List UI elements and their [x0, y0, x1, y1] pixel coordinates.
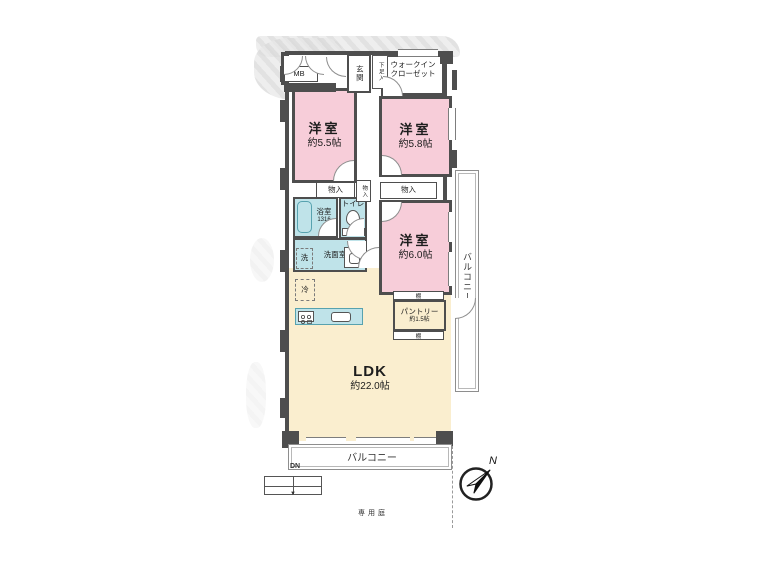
- wall-stub-left-2: [280, 168, 286, 190]
- stairs-dn-label: DN: [290, 463, 300, 470]
- closet-a: 物入: [316, 182, 355, 198]
- scan-blob-2: [246, 362, 266, 428]
- sink-icon: [331, 312, 351, 322]
- pantry-shelf-top-label: 棚: [416, 292, 422, 300]
- floorplan-canvas: 洋室 約5.5帖 洋室 約5.8帖 洋室 約6.0帖 ウォークイン クローゼット…: [0, 0, 764, 573]
- washer-space: 洗: [296, 248, 313, 269]
- wall-stub-left-3: [280, 250, 286, 272]
- bedroom3-label: 洋室: [399, 233, 431, 249]
- entrance-label: 玄関: [355, 65, 364, 82]
- bedroom1-label: 洋室: [308, 121, 340, 137]
- washer-label: 洗: [301, 254, 309, 263]
- bedroom3-size: 約6.0帖: [399, 250, 433, 262]
- shoe-cabinet-label: 下足入: [377, 62, 383, 82]
- pantry-shelf-bottom-label: 棚: [416, 332, 422, 340]
- pillar-top-right: [440, 51, 453, 64]
- wic-label-line2: クローゼット: [391, 70, 436, 79]
- wall-stub-right-2: [452, 150, 457, 168]
- balcony-bottom-label: バルコニー: [330, 449, 414, 464]
- garden-label: 専用庭: [338, 508, 408, 518]
- bathroom-label: 浴室: [317, 208, 332, 217]
- pantry-shelf-bottom: 棚: [393, 331, 444, 340]
- closet-b: 物入: [356, 180, 371, 202]
- scan-blob-1: [250, 238, 274, 282]
- balcony-right-label: バルコニー: [461, 252, 474, 302]
- closet-c-label: 物入: [401, 186, 416, 195]
- washroom-label: 洗面室: [324, 251, 347, 260]
- bedroom2-size: 約5.8帖: [399, 139, 433, 151]
- ldk-label: LDK: [353, 363, 387, 382]
- garden-boundary-line: [452, 446, 453, 528]
- window-top-bedroom2: [398, 49, 438, 57]
- ldk-label-block: LDK 約22.0帖: [310, 360, 430, 396]
- closet-a-label: 物入: [328, 186, 343, 195]
- stairs-arrow-icon: ▼: [290, 491, 296, 497]
- compass-n-label: N: [489, 455, 497, 467]
- pantry-size: 約1.5帖: [409, 317, 429, 324]
- wall-stub-left-4: [280, 330, 286, 352]
- room-entrance: 玄関: [347, 54, 371, 93]
- wall-stub-left-1: [280, 100, 286, 122]
- compass: N: [454, 452, 504, 506]
- closet-b-label: 物入: [361, 185, 367, 198]
- pantry-shelf-top: 棚: [393, 291, 444, 300]
- room-pantry: パントリー 約1.5帖: [393, 300, 446, 331]
- compass-icon: N: [454, 452, 504, 506]
- wall-porch-bottom: [284, 83, 336, 92]
- wall-stub-right-1: [452, 70, 457, 90]
- stove-burners: [299, 314, 315, 325]
- window-right-bedroom2: [448, 108, 456, 140]
- wall-stub-left-5: [280, 398, 286, 418]
- ldk-size: 約22.0帖: [350, 381, 389, 393]
- kitchen-counter: [295, 308, 363, 325]
- bedroom1-size: 約5.5帖: [308, 138, 342, 150]
- stairs-down: ▼: [264, 476, 322, 495]
- fridge-label: 冷: [301, 286, 309, 295]
- pantry-label: パントリー: [401, 308, 439, 317]
- bathtub: [297, 201, 312, 233]
- bedroom2-label: 洋室: [399, 122, 431, 138]
- fridge-space: 冷: [295, 279, 315, 301]
- stove-icon: [298, 311, 314, 322]
- closet-c: 物入: [380, 182, 437, 199]
